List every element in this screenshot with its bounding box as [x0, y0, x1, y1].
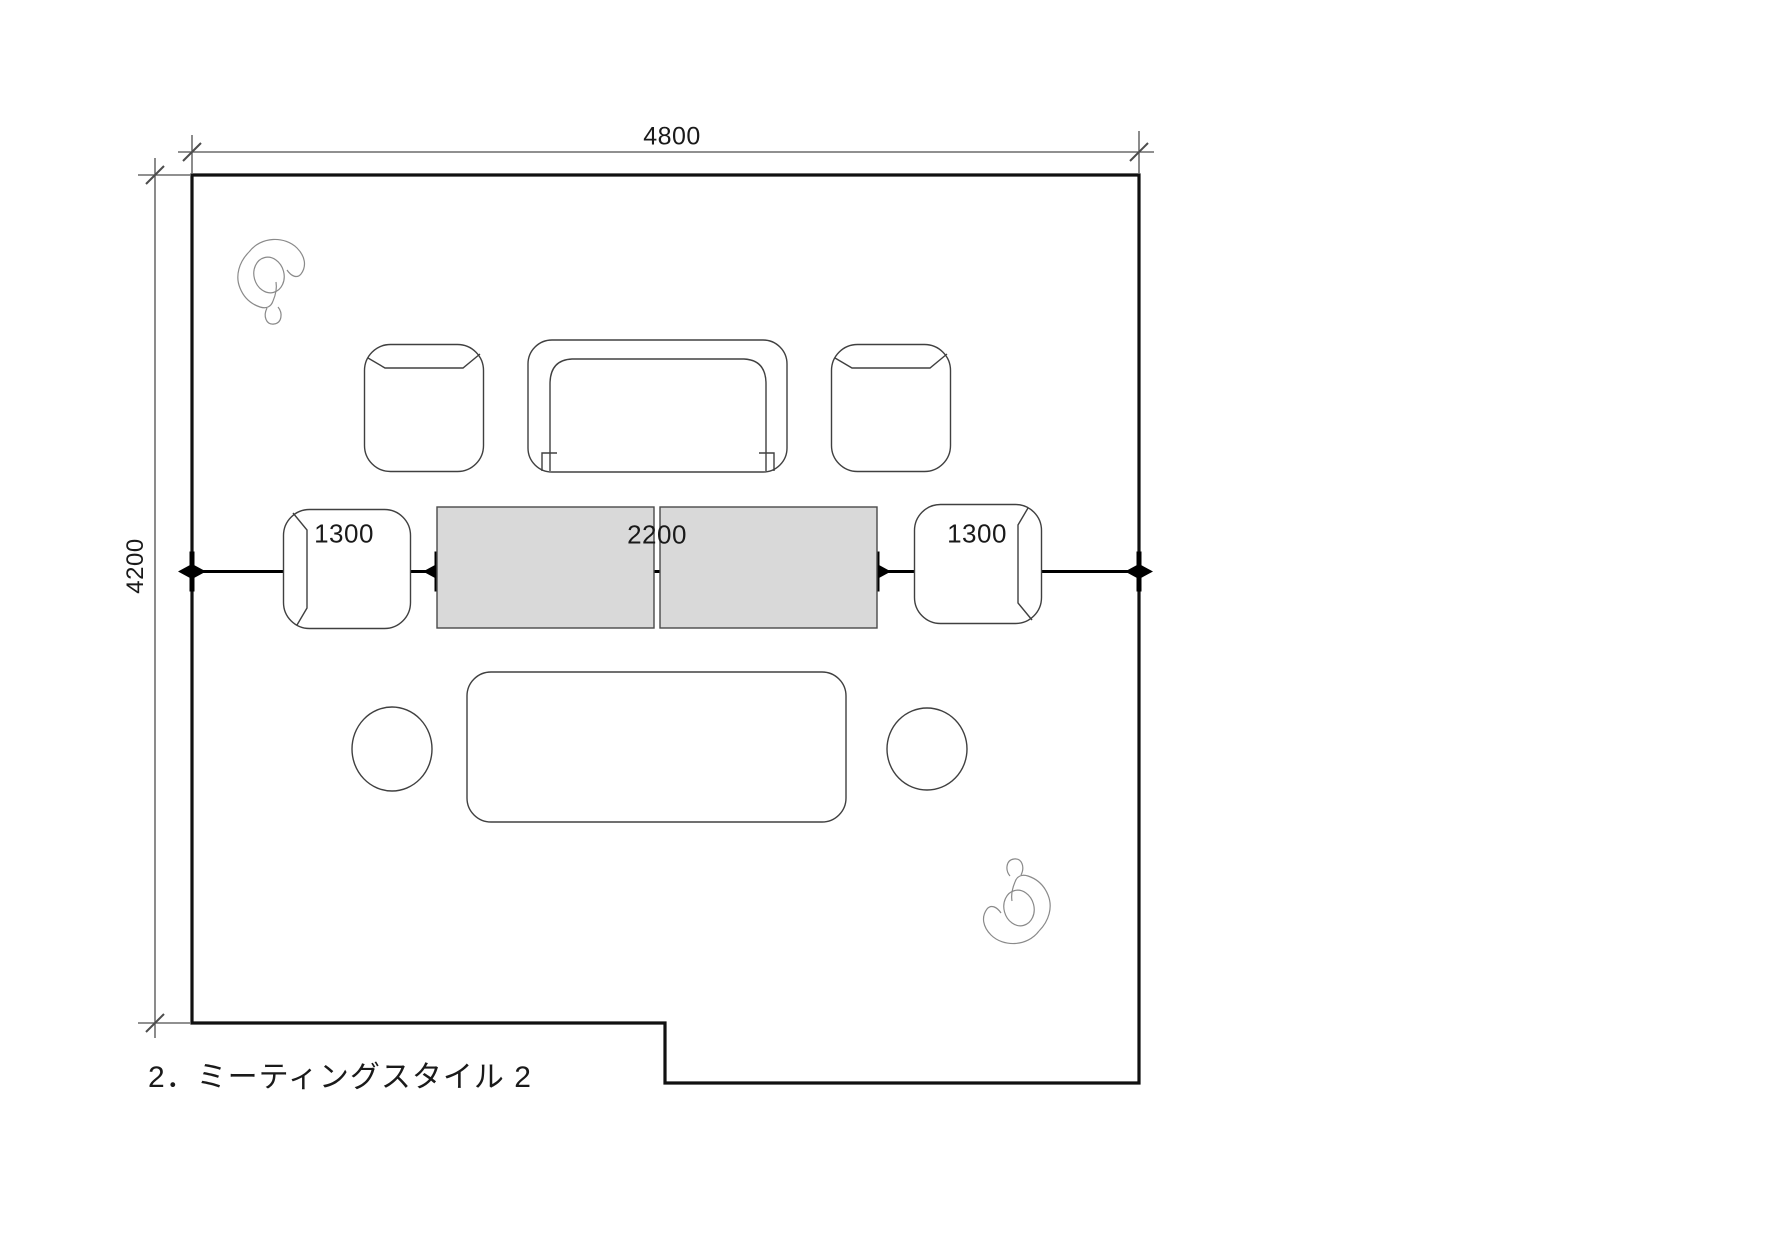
- meeting-table-left: [437, 507, 654, 628]
- left-dimension: [138, 158, 190, 1038]
- dimension-value-left-zone: 1300: [314, 519, 374, 550]
- plan-caption: 2．ミーティングスタイル 2: [148, 1052, 532, 1096]
- stool-right-icon: [887, 708, 967, 790]
- dimension-value-right-zone: 1300: [947, 519, 1007, 550]
- armchair-top-right-icon: [832, 345, 951, 472]
- floor-plan-canvas: 4800 4200 1300 2200 1300 2．ミーティングスタイル 2: [0, 0, 1790, 1260]
- person-top-left-icon: [238, 239, 305, 324]
- middle-dimension-tick-wall-right: [1125, 552, 1153, 592]
- dimension-value-room-width: 4800: [643, 123, 701, 152]
- stool-left-icon: [352, 707, 432, 791]
- dimension-value-room-depth: 4200: [122, 538, 150, 593]
- person-bottom-right-icon: [984, 859, 1051, 944]
- meeting-table-right: [660, 507, 877, 628]
- middle-dimension-tick-wall-left: [178, 552, 206, 592]
- armchair-top-left-icon: [365, 345, 484, 472]
- low-table-icon: [467, 672, 846, 822]
- dimension-value-table-span: 2200: [627, 520, 687, 551]
- sofa-icon: [528, 340, 787, 472]
